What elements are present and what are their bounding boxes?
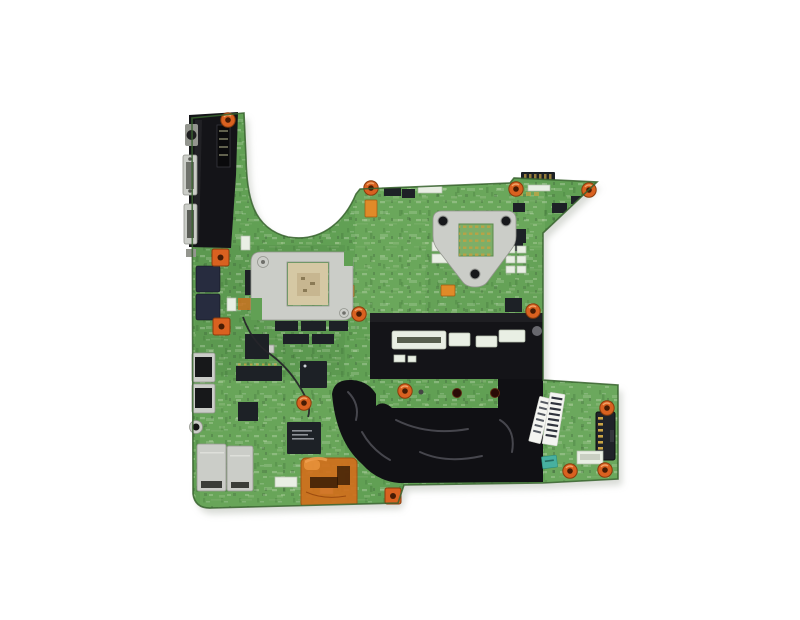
screw-grommet — [598, 463, 612, 477]
screw-pad-square — [212, 249, 229, 266]
qc-sticker — [541, 455, 557, 469]
expansion-port — [184, 204, 197, 244]
audio-jack — [190, 421, 203, 434]
southbridge-chip — [287, 422, 321, 454]
bracket-hole — [438, 216, 448, 226]
bracket-hole — [470, 269, 480, 279]
gpu-retention-frame — [251, 252, 353, 320]
screw-grommet — [526, 304, 540, 318]
motherboard-photo — [0, 0, 800, 620]
io-controller-chip — [300, 361, 327, 388]
film-screw-hole — [453, 389, 462, 398]
bottom-right-connector — [577, 451, 603, 464]
memory-slot-tape — [370, 313, 543, 379]
board-to-board-connector — [217, 125, 230, 167]
photo-canvas — [0, 0, 800, 620]
screw-grommet — [563, 464, 577, 478]
vga-port — [183, 155, 197, 195]
screw-grommet — [398, 384, 412, 398]
screw-grommet — [297, 396, 311, 410]
flat-pack-chip — [236, 364, 282, 382]
film-screw-hole — [419, 390, 424, 395]
lan-modem-shield — [197, 444, 253, 491]
screw-grommet — [600, 401, 614, 415]
film-screw-hole — [491, 389, 500, 398]
screw-grommet — [509, 182, 523, 196]
screw-pad-square — [213, 318, 230, 335]
kapton-tape-patch — [301, 458, 357, 508]
small-port — [186, 249, 196, 257]
screw-grommet — [352, 307, 366, 321]
bracket-hole — [501, 216, 511, 226]
